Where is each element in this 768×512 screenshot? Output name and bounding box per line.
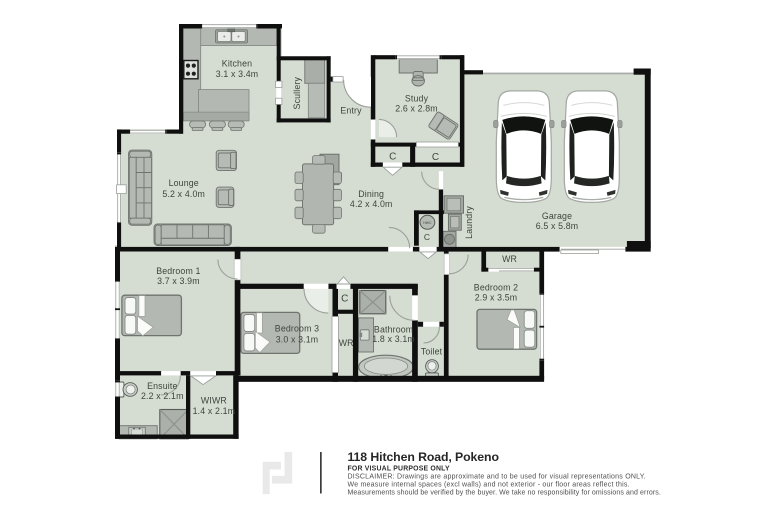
svg-text:1.4 x 2.1m: 1.4 x 2.1m	[193, 406, 236, 416]
svg-text:C: C	[424, 232, 430, 242]
svg-text:Study: Study	[405, 93, 429, 103]
svg-text:Toilet: Toilet	[421, 346, 443, 356]
svg-text:Bedroom 2: Bedroom 2	[474, 283, 518, 293]
svg-text:HWC: HWC	[423, 221, 432, 225]
svg-text:6.5 x 5.8m: 6.5 x 5.8m	[536, 221, 579, 231]
svg-text:WR: WR	[339, 338, 354, 348]
svg-text:C: C	[432, 152, 439, 163]
svg-text:118 Hitchen Road, Pokeno: 118 Hitchen Road, Pokeno	[348, 450, 500, 464]
svg-text:Entry: Entry	[340, 105, 362, 115]
svg-text:Ensuite: Ensuite	[147, 381, 177, 391]
svg-text:Scullery: Scullery	[292, 77, 302, 110]
svg-text:3.1 x 3.4m: 3.1 x 3.4m	[216, 69, 259, 79]
svg-text:Dining: Dining	[358, 189, 384, 199]
svg-text:3.7 x 3.9m: 3.7 x 3.9m	[157, 276, 200, 286]
svg-text:C: C	[341, 294, 348, 305]
svg-text:C: C	[389, 152, 396, 163]
svg-text:5.2 x 4.0m: 5.2 x 4.0m	[162, 189, 205, 199]
svg-text:WR: WR	[502, 254, 517, 264]
svg-text:3.0 x 3.1m: 3.0 x 3.1m	[276, 335, 319, 345]
svg-text:Bedroom 1: Bedroom 1	[156, 266, 200, 276]
svg-text:2.6 x 2.8m: 2.6 x 2.8m	[395, 104, 438, 114]
svg-text:2.2 x 2.1m: 2.2 x 2.1m	[141, 391, 184, 401]
svg-text:1.8 x 3.1m: 1.8 x 3.1m	[372, 334, 415, 344]
svg-text:We measure internal spaces (ex: We measure internal spaces (excl walls) …	[348, 481, 630, 488]
svg-text:DISCLAIMER: Drawings are appr: DISCLAIMER: Drawings are approximate and…	[348, 473, 646, 480]
svg-text:Garage: Garage	[542, 211, 572, 221]
svg-text:Kitchen: Kitchen	[222, 58, 252, 68]
svg-text:Measurements should be verifie: Measurements should be verified by the b…	[348, 490, 661, 497]
svg-text:Lounge: Lounge	[169, 178, 199, 188]
svg-text:FOR VISUAL PURPOSE ONLY: FOR VISUAL PURPOSE ONLY	[348, 466, 450, 473]
svg-text:Bedroom 3: Bedroom 3	[275, 324, 319, 334]
svg-text:WIWR: WIWR	[201, 396, 227, 406]
svg-text:Bathroom: Bathroom	[374, 325, 413, 335]
svg-text:2.9 x 3.5m: 2.9 x 3.5m	[475, 293, 518, 303]
svg-text:Laundry: Laundry	[464, 206, 474, 239]
svg-text:4.2 x 4.0m: 4.2 x 4.0m	[350, 199, 393, 209]
